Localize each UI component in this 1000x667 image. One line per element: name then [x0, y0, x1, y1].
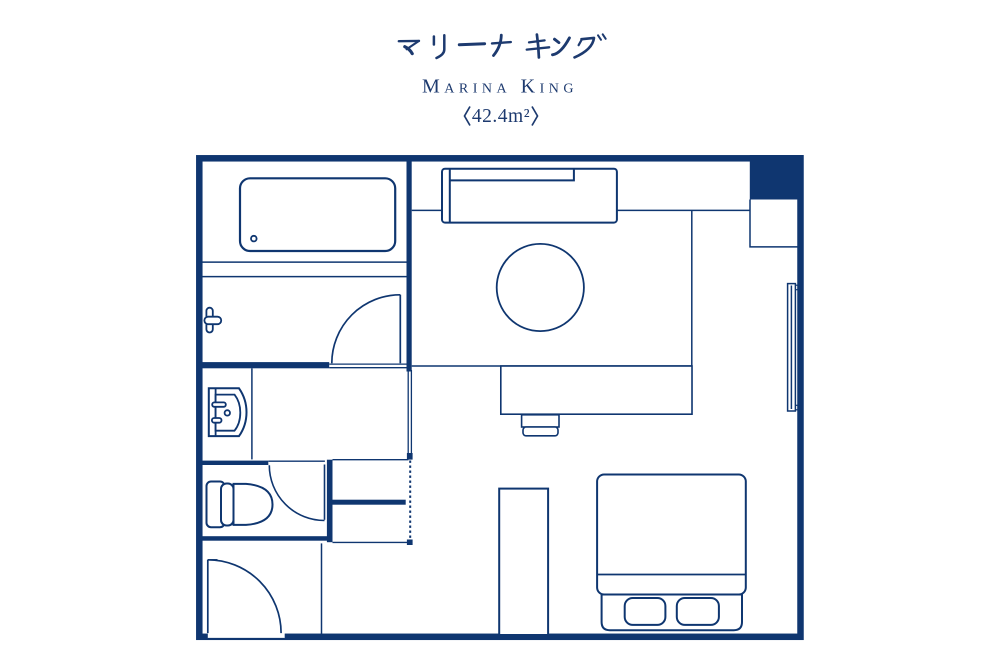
svg-text:42.4m²: 42.4m²	[472, 106, 530, 127]
svg-text:Marina King: Marina King	[422, 76, 578, 98]
